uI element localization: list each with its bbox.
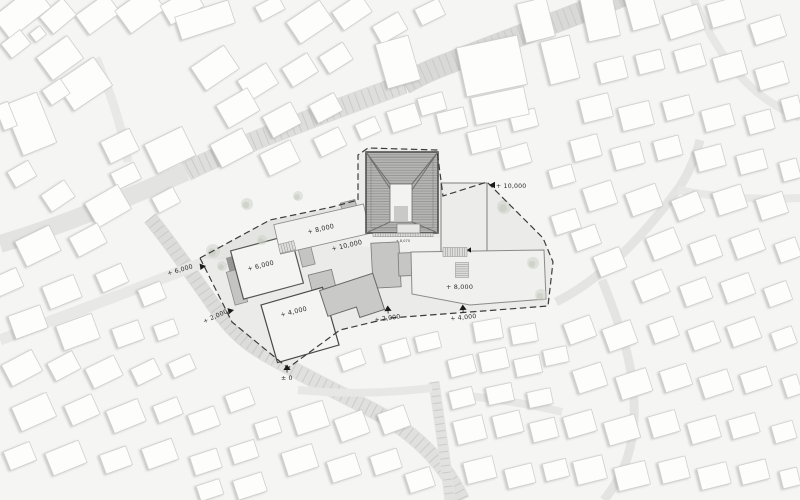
- site-building: [411, 250, 546, 305]
- tree: [294, 194, 300, 200]
- marker-label: ± 0: [281, 375, 293, 382]
- marker-label: + 10,000: [496, 183, 526, 190]
- main-hall-porch: [397, 224, 420, 233]
- main-hall-courtyard-inner: [394, 206, 408, 221]
- tree: [499, 204, 507, 212]
- tree: [529, 261, 536, 268]
- street: [298, 388, 432, 393]
- tree: [243, 202, 250, 209]
- context-building: [779, 467, 800, 489]
- elevation-label: + 8,000: [446, 283, 473, 291]
- tree: [537, 293, 544, 300]
- tree: [258, 238, 264, 244]
- stair: [443, 248, 467, 257]
- stair: [456, 263, 469, 278]
- tree: [218, 264, 224, 270]
- site-plan-canvas: + 6,000+ 8,000+ 10,000+ 4,000+ 8,000+ 8,…: [0, 0, 800, 500]
- elevation-label: + 8,070: [396, 239, 410, 243]
- site-plan-svg: + 6,000+ 8,000+ 10,000+ 4,000+ 8,000+ 8,…: [0, 0, 800, 500]
- context-building: [472, 318, 503, 343]
- stair: [373, 233, 433, 237]
